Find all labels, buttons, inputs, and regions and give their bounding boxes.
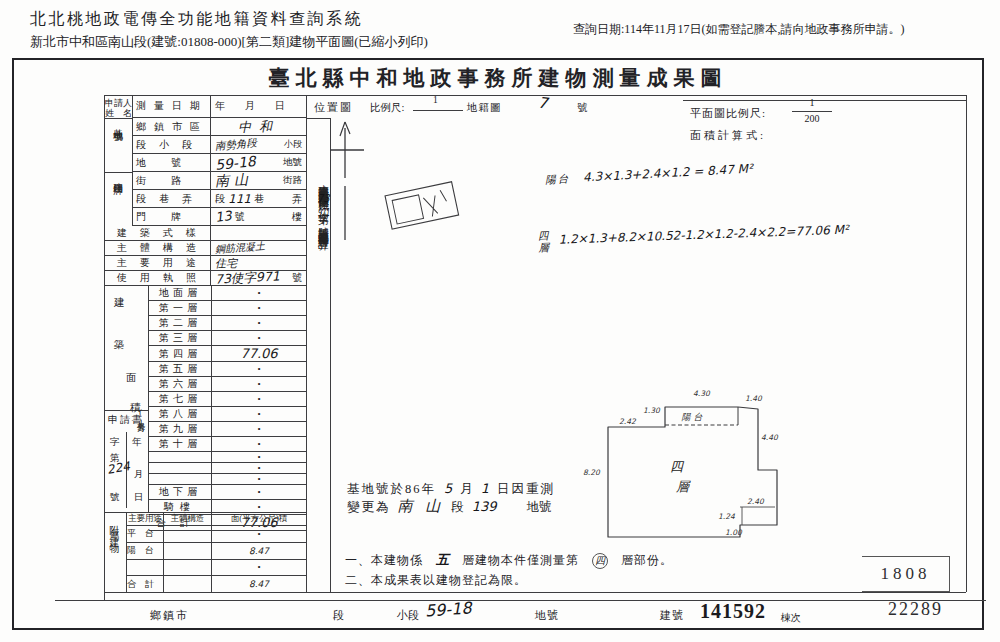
footnote-handwritten: 五 xyxy=(436,551,449,569)
street-value: 南山 xyxy=(215,171,254,191)
annex-header-usage: 主要用途 xyxy=(127,512,164,525)
lane-label: 段巷弄 xyxy=(136,192,205,206)
table-row: 第十層• xyxy=(149,437,306,452)
application-ri: 日 xyxy=(134,491,144,504)
annex-row-structure xyxy=(164,526,212,542)
table-row: • xyxy=(149,474,306,485)
floor-label: 第七層 xyxy=(149,392,212,406)
table-row: 建築式樣 xyxy=(104,226,306,241)
page-number-stamp: 1808 xyxy=(881,564,931,584)
floor-label xyxy=(149,463,212,473)
floor-value: • xyxy=(212,407,306,421)
footer-subsection-label: 小段 xyxy=(397,608,419,623)
table-row: 段巷弄 段111巷弄 xyxy=(132,190,306,208)
location-scale-numerator: 1 xyxy=(433,95,438,105)
annex-header-area: 面(平方公尺)積 xyxy=(212,512,306,525)
resurvey-handwritten: 南 山 xyxy=(398,497,445,516)
footer-parcel-label: 地號 xyxy=(535,608,559,623)
fraction-bar xyxy=(792,111,832,112)
area-calc-label: 面積計算式: xyxy=(690,128,766,143)
section-value: 南勢角段 xyxy=(214,136,257,154)
balcony-formula-label: 陽台 xyxy=(545,172,571,187)
table-row: 合計 8.47 xyxy=(127,576,306,592)
survey-date-label: 測量日期 xyxy=(136,99,208,113)
table-row: 測量日期 年 月 日 xyxy=(132,95,306,118)
application-hao: 號 xyxy=(110,491,120,504)
footnote-1: 一、本建物係 五 層建物本件僅測量第 四 層部份。 xyxy=(345,550,673,569)
section-label: 段小段 xyxy=(136,138,205,152)
annex-row-value: • xyxy=(212,526,306,542)
plate-value: 13 xyxy=(214,208,232,225)
footnote-circled-four: 四 xyxy=(592,553,608,569)
vertical-note-handwritten: 73 xyxy=(317,193,330,204)
system-title: 北北桃地政電傳全功能地籍資料查詢系統 xyxy=(30,9,363,30)
table-row: 地面層• xyxy=(149,286,306,301)
annex-row-structure xyxy=(164,543,212,559)
location-map-label: 位置圖 xyxy=(314,100,353,115)
table-row: • xyxy=(149,452,306,463)
form-identity-rows: 測量日期 年 月 日 鄉鎮市區 中和 段小段 南勢角段小段 地號 59-18地號… xyxy=(132,95,306,226)
table-row: 第二層• xyxy=(149,316,306,331)
form-title: 臺北縣中和地政事務所建物測量成果圖 xyxy=(12,64,984,92)
table-row: 街路 南山街路 xyxy=(132,172,306,190)
floor-label xyxy=(149,452,212,462)
floor-value: • xyxy=(212,437,306,451)
plan-balcony-label: 陽 台 xyxy=(682,412,703,422)
area-group-char: 建 xyxy=(114,296,125,310)
floor-label: 地下層 xyxy=(149,485,212,499)
floor-value: • xyxy=(212,452,306,462)
lane-value: 111 xyxy=(228,192,251,206)
parcel-value: 59-18 xyxy=(214,152,256,172)
page-number-stamp-box: 1808 xyxy=(862,556,950,592)
floor-value: 77.06 xyxy=(212,346,306,361)
lane-suffix: 弄 xyxy=(292,192,302,206)
annex-total-label: 合計 xyxy=(127,576,164,592)
dim-label: 2.42 xyxy=(619,417,637,426)
floor-label: 地面層 xyxy=(149,286,212,300)
parcel-label: 地號 xyxy=(136,156,206,170)
plate-suffix: 樓 xyxy=(292,210,302,224)
floor-plan-drawing: 4.30 1.40 1.30 陽 台 2.42 4.40 8.20 四 層 2.… xyxy=(575,378,790,550)
floor-label: 第一層 xyxy=(149,301,212,315)
table-row: • xyxy=(127,560,306,577)
table-row: 第八層• xyxy=(149,407,306,422)
annex-row-value: • xyxy=(212,560,306,576)
lane-pre: 段 xyxy=(215,192,225,206)
floor-label: 第六層 xyxy=(149,377,212,391)
application-nian: 年 xyxy=(132,436,142,449)
table-row: 第一層• xyxy=(149,301,306,316)
footer-subsection-value: 59-18 xyxy=(424,598,472,620)
annex-table: 主要用途 主體構造 面(平方公尺)積 平台 • 陽台 8.47 • 合計 8.4… xyxy=(126,512,306,592)
plate-mid: 號 xyxy=(235,210,245,224)
annex-row-label: 平台 xyxy=(127,526,164,542)
township-label: 鄉鎮市區 xyxy=(136,120,208,134)
document-subtitle: 新北市中和區南山段(建號:01808-000)[第二類]建物平面圖(已縮小列印) xyxy=(30,33,428,51)
resurvey-handwritten: 5 xyxy=(444,481,452,496)
divider-line xyxy=(104,592,966,593)
divider-line xyxy=(104,172,132,173)
annex-row-value: 8.47 xyxy=(212,543,306,559)
table-row: 第四層77.06 xyxy=(149,346,306,362)
application-doc-label: 申請書 xyxy=(106,413,146,427)
table-row: 第七層• xyxy=(149,392,306,407)
divider-line xyxy=(55,600,986,601)
area-group-char: 築 xyxy=(114,338,125,352)
dim-label: 4.30 xyxy=(693,389,711,398)
resurvey-note-line1: 基地號於86年 5 月 1 日因重測 xyxy=(347,479,555,498)
footer-serial-number: 22289 xyxy=(888,599,943,620)
section-suffix: 小段 xyxy=(284,138,302,151)
usage-label: 主要用途 xyxy=(108,256,209,270)
dim-label: 1.40 xyxy=(745,394,763,403)
floor-label: 第二層 xyxy=(149,316,212,330)
floor-value: • xyxy=(212,301,306,315)
floor-label xyxy=(149,474,212,484)
divider-line xyxy=(104,95,105,600)
resurvey-text: 段 xyxy=(451,500,464,514)
floor-label: 第三層 xyxy=(149,331,212,345)
dim-label: 1.24 xyxy=(718,512,735,521)
table-row: 門牌 13號樓 xyxy=(132,208,306,226)
area-group-char: 面 xyxy=(126,371,137,385)
annex-row-structure xyxy=(164,560,212,576)
annex-row-structure xyxy=(164,576,212,592)
table-row: 第五層• xyxy=(149,362,306,377)
lane-mid: 巷 xyxy=(254,192,264,206)
plan-scale-label: 平面圖比例尺: xyxy=(690,106,766,121)
table-row: 第三層• xyxy=(149,331,306,346)
table-row: 主體構造 鋼筋混凝土 xyxy=(104,241,306,256)
resurvey-text: 變更為 xyxy=(347,500,391,514)
license-label: 使用執照 xyxy=(108,271,209,285)
floor-value: • xyxy=(212,331,306,345)
vertical-note-strip: 本建物平面圖及建物面積係依使用執照73使字第971號設計圖或竣工平面圖轉繪計算 xyxy=(307,176,330,590)
resurvey-text: 基地號於86年 xyxy=(347,482,436,496)
floor-value: • xyxy=(212,316,306,330)
table-row: 地號 59-18地號 xyxy=(132,154,306,172)
footer-building-no: 141592 xyxy=(700,600,766,623)
survey-date-value: 年 月 日 xyxy=(215,99,285,113)
dim-label: 2.40 xyxy=(747,497,765,506)
style-label: 建築式樣 xyxy=(108,226,209,240)
annex-row-label xyxy=(127,560,164,576)
dim-label: 1.30 xyxy=(643,406,661,415)
table-row: 第九層• xyxy=(149,422,306,437)
street-suffix: 街路 xyxy=(283,174,302,187)
footer-township-label: 鄉鎮市 xyxy=(150,608,189,623)
divider-line xyxy=(306,118,330,119)
footnote-text: 一、本建物係 xyxy=(345,553,423,567)
plan-scale-numerator: 1 xyxy=(792,97,832,108)
floor-value: • xyxy=(212,463,306,473)
footer-unit-label: 棟次 xyxy=(781,611,801,625)
resurvey-text: 地號 xyxy=(527,500,552,514)
floor-area-table: 地面層• 第一層• 第二層• 第三層• 第四層77.06 第五層• 第六層• 第… xyxy=(148,286,306,512)
form-structure-rows: 建築式樣 主體構造 鋼筋混凝土 主要用途 住宅 使用執照 73使字971號 xyxy=(104,226,306,286)
location-scale-label: 比例尺: xyxy=(370,101,404,115)
township-value: 中和 xyxy=(237,117,280,136)
plan-room-label: 層 xyxy=(676,479,691,494)
floor4-formula-label: 四 xyxy=(538,229,549,241)
floor-value: • xyxy=(212,286,306,300)
footnote-2: 二、本成果表以建物登記為限。 xyxy=(345,572,527,589)
annex-total-value: 8.47 xyxy=(212,576,306,592)
table-row: 陽台 8.47 xyxy=(127,543,306,560)
resurvey-note-line2: 變更為 南 山 段 139 地號 xyxy=(347,497,552,516)
structure-value: 鋼筋混凝土 xyxy=(215,239,266,256)
group-label-building-plate: 建物門牌 xyxy=(111,175,124,225)
floor-value: • xyxy=(212,474,306,484)
floor4-formula-text: 1.2×1.3+8.2×10.52-1.2×1.2-2.4×2.2=77.06 … xyxy=(558,223,849,247)
parcel-suffix: 地號 xyxy=(283,156,302,169)
application-zi: 字 xyxy=(110,436,120,449)
applicant-label: 申請人 姓 名 xyxy=(105,98,132,118)
scanned-document-page: 北北桃地政電傳全功能地籍資料查詢系統 新北市中和區南山段(建號:01808-00… xyxy=(0,0,1000,642)
footer-building-no-label: 建號 xyxy=(660,608,684,623)
table-row: • xyxy=(149,463,306,474)
dim-label: 8.20 xyxy=(583,468,601,477)
plan-room-label: 四 xyxy=(670,459,685,474)
table-row: 地下層• xyxy=(149,485,306,500)
table-row: 主要用途 主體構造 面(平方公尺)積 xyxy=(127,512,306,526)
floor-label: 第九層 xyxy=(149,422,212,436)
fraction-bar xyxy=(413,110,463,111)
structure-label: 主體構造 xyxy=(108,241,209,255)
street-label: 街路 xyxy=(136,174,206,188)
north-arrow-icon xyxy=(330,120,370,245)
floor-value: • xyxy=(212,485,306,499)
divider-line xyxy=(966,95,967,592)
footer-section-label: 段 xyxy=(333,608,344,623)
annex-header-structure: 主體構造 xyxy=(164,512,212,525)
vertical-note-text: 本建物平面圖及建物面積係依使用執照 xyxy=(318,176,329,193)
resurvey-text: 月 xyxy=(460,482,473,496)
usage-value: 住宅 xyxy=(215,256,237,271)
vertical-note-handwritten: 971 xyxy=(317,207,330,218)
table-row: 段小段 南勢角段小段 xyxy=(132,136,306,154)
floor-label: 第四層 xyxy=(149,346,212,361)
footnote-text: 層建物本件僅測量第 xyxy=(462,553,579,567)
floor-label: 第八層 xyxy=(149,407,212,421)
table-row: 鄉鎮市區 中和 xyxy=(132,118,306,136)
floor-value: • xyxy=(212,422,306,436)
plan-scale-denominator: 200 xyxy=(792,113,832,124)
application-yue: 月 xyxy=(134,468,144,481)
annex-row-label: 陽台 xyxy=(127,543,164,559)
table-row: 第六層• xyxy=(149,377,306,392)
cadastral-sheet-no: 7 xyxy=(537,94,548,113)
resurvey-handwritten: 1 xyxy=(481,481,489,496)
license-suffix: 號 xyxy=(292,271,302,285)
group-label-base-parcel: 基地地號 xyxy=(111,121,124,171)
divider-line xyxy=(104,118,132,119)
dim-label: 4.40 xyxy=(761,433,779,442)
query-date: 查詢日期:114年11月17日(如需登記謄本,請向地政事務所申請。) xyxy=(573,21,904,38)
floor-value: • xyxy=(212,377,306,391)
resurvey-text: 日因重測 xyxy=(497,482,555,496)
footnote-text: 層部份。 xyxy=(621,553,673,567)
floor-value: • xyxy=(212,392,306,406)
floor4-formula-label: 層 xyxy=(538,241,549,253)
cadastral-map-label: 地籍圖 xyxy=(467,101,502,115)
floor-label: 第五層 xyxy=(149,362,212,376)
resurvey-handwritten: 139 xyxy=(472,499,497,514)
floor-value: • xyxy=(212,362,306,376)
table-row: 平台 • xyxy=(127,526,306,543)
vertical-note-text: 號設計圖或竣工平面圖轉繪計算 xyxy=(318,218,329,232)
floor-label: 第十層 xyxy=(149,437,212,451)
plate-label: 門牌 xyxy=(136,210,206,224)
sheet-no-suffix: 號 xyxy=(577,101,588,115)
group-label-annex: 附屬建物 xyxy=(107,517,121,589)
dim-label: 1.00 xyxy=(725,528,743,537)
table-row: 使用執照 73使字971號 xyxy=(104,271,306,286)
